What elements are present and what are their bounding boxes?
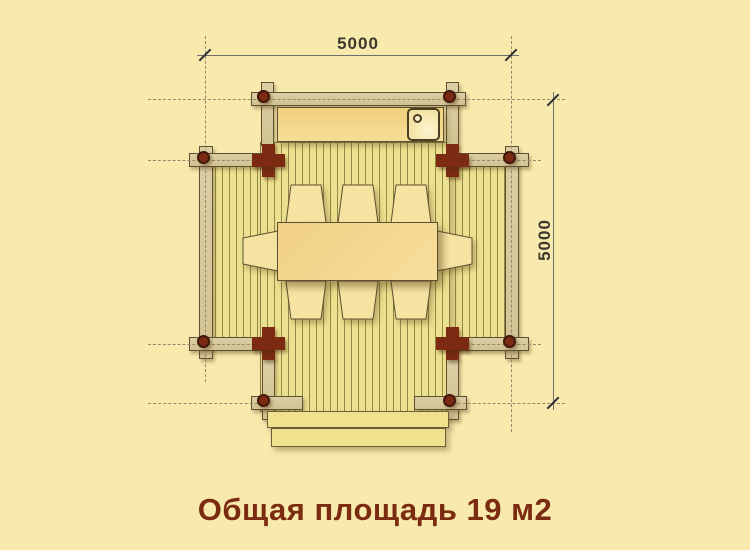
corner-post-cross: [436, 144, 469, 177]
corner-post-cross: [252, 144, 285, 177]
top-dimension-label: 5000: [258, 34, 458, 54]
floor-plan-canvas: 5000 5000 Общая площадь 19 м2: [0, 0, 750, 550]
top-dimension-line: [197, 55, 519, 56]
chair: [391, 185, 431, 223]
centerline-dash: [511, 36, 512, 432]
log-end: [443, 90, 456, 103]
chair: [338, 281, 378, 319]
chair: [243, 231, 278, 271]
dining-table: [277, 222, 438, 281]
log-end: [197, 335, 210, 348]
chair: [338, 185, 378, 223]
log-end: [257, 394, 270, 407]
chair: [391, 281, 431, 319]
log-end: [503, 151, 516, 164]
chair: [286, 281, 326, 319]
log-end: [197, 151, 210, 164]
log-end: [503, 335, 516, 348]
centerline-dash: [148, 403, 268, 404]
log-end: [257, 90, 270, 103]
centerline-dash: [448, 403, 565, 404]
corner-post-cross: [252, 327, 285, 360]
corner-post-cross: [436, 327, 469, 360]
area-caption: Общая площадь 19 м2: [0, 492, 750, 528]
centerline-dash: [148, 99, 565, 100]
centerline-dash: [205, 36, 206, 382]
right-dimension-label: 5000: [535, 140, 555, 340]
chair: [437, 231, 472, 271]
chair: [286, 185, 326, 223]
log-end: [443, 394, 456, 407]
